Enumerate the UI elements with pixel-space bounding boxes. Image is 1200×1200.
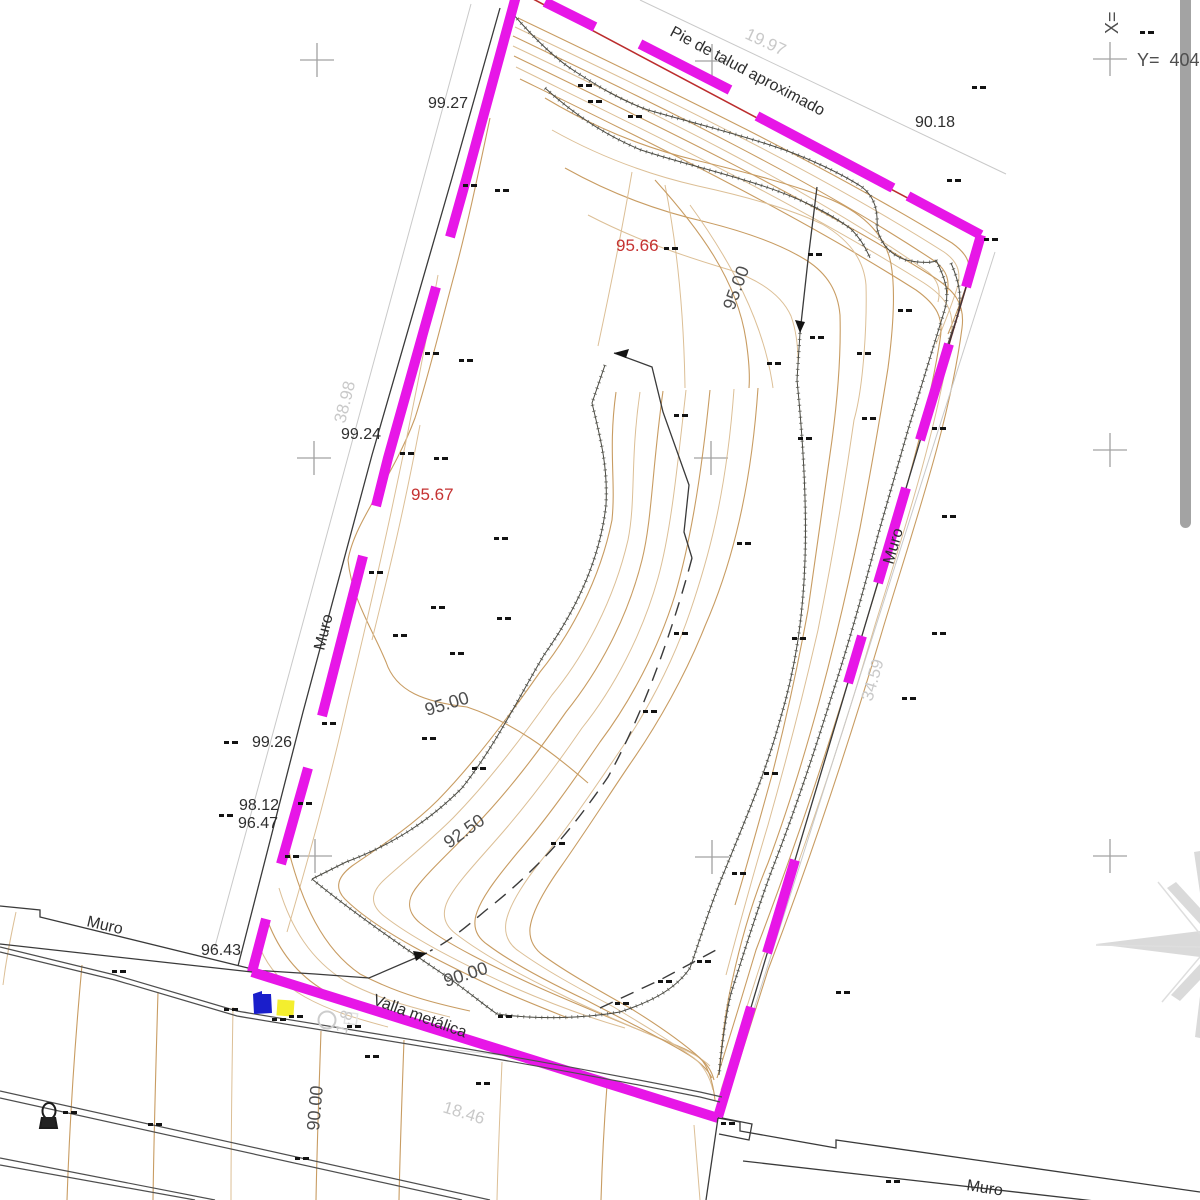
svg-text:95.66: 95.66 bbox=[616, 236, 659, 255]
svg-text:92.50: 92.50 bbox=[440, 810, 488, 852]
svg-text:99.24: 99.24 bbox=[341, 426, 381, 443]
svg-text:90.00: 90.00 bbox=[441, 958, 490, 991]
svg-text:90.18: 90.18 bbox=[915, 114, 955, 131]
svg-text:X=: X= bbox=[1102, 11, 1122, 34]
svg-text:99.26: 99.26 bbox=[252, 734, 292, 751]
svg-text:99.27: 99.27 bbox=[428, 95, 468, 112]
svg-text:96.47: 96.47 bbox=[238, 815, 278, 832]
svg-text:34.59: 34.59 bbox=[858, 657, 888, 703]
svg-text:95.67: 95.67 bbox=[411, 485, 454, 504]
svg-text:Y= 404: Y= 404 bbox=[1137, 50, 1200, 70]
svg-text:1.8: 1.8 bbox=[332, 1008, 357, 1036]
svg-text:Muro: Muro bbox=[965, 1177, 1004, 1200]
svg-text:Muro: Muro bbox=[85, 913, 124, 938]
svg-text:38.98: 38.98 bbox=[330, 379, 359, 425]
svg-text:96.43: 96.43 bbox=[201, 942, 241, 959]
svg-text:19.97: 19.97 bbox=[742, 24, 789, 59]
svg-text:18.46: 18.46 bbox=[441, 1098, 487, 1129]
svg-text:Muro: Muro bbox=[311, 612, 336, 652]
svg-text:95.00: 95.00 bbox=[719, 263, 753, 312]
svg-text:98.12: 98.12 bbox=[239, 797, 279, 814]
svg-text:90.00: 90.00 bbox=[303, 1085, 327, 1132]
svg-text:95.00: 95.00 bbox=[422, 688, 471, 720]
svg-text:Muro: Muro bbox=[881, 526, 907, 566]
